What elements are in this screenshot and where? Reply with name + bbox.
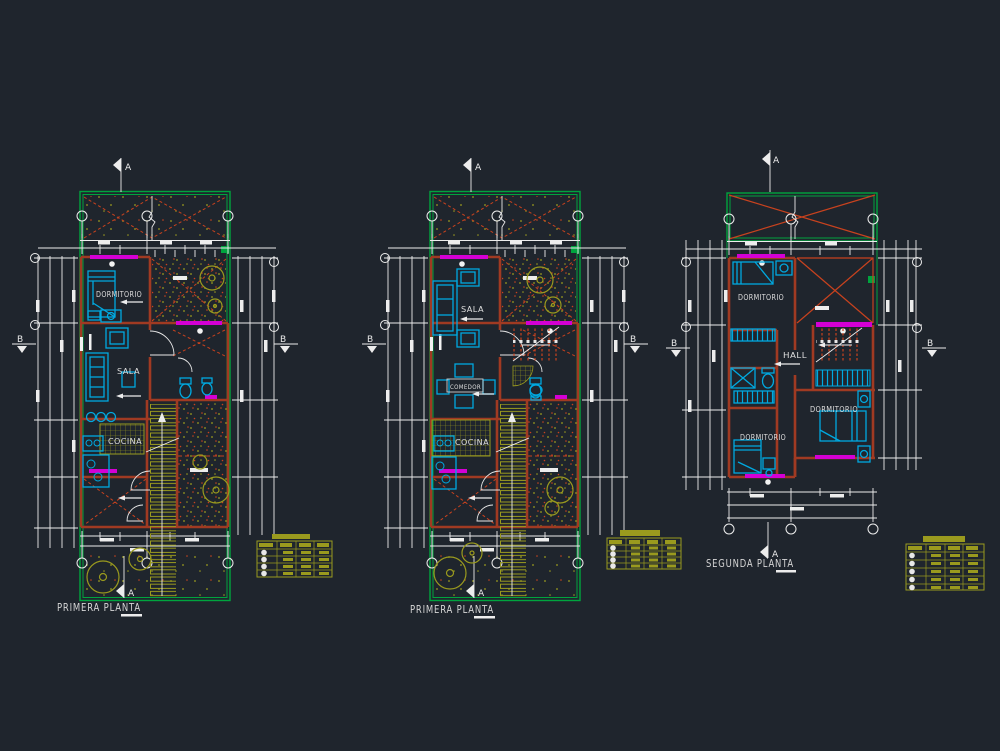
dimension-lines [682,224,922,522]
floor-plans-drawing: DORMITORIO SALA COCINA A A B B PRIMERA P… [0,0,1000,751]
title-underline [776,570,796,573]
cad-drawing-canvas[interactable]: DORMITORIO SALA COCINA A A B B PRIMERA P… [0,0,1000,751]
schedule-table-right [906,536,984,590]
bedroom3-furniture [820,391,870,462]
section-b-right: B [280,335,286,345]
bathroom-bidet [202,378,212,395]
section-a-top: A [125,163,132,173]
title-underline [474,616,495,619]
plan-title: PRIMERA PLANTA [57,602,141,614]
section-a-bottom: A [478,589,485,599]
dining-label: COMEDOR [450,383,481,391]
title-underline [121,614,142,617]
plan-title: PRIMERA PLANTA [410,604,494,616]
kitchen-furniture [432,420,490,489]
room-labels: DORMITORIO SALA COCINA [96,290,142,446]
section-a-top: A [773,156,780,166]
plan-title: SEGUNDA PLANTA [706,558,794,570]
kitchen-label: COCINA [108,437,142,446]
section-b-left: B [17,335,23,345]
interior-stair-flight [513,327,559,386]
plan-primera-planta-1: DORMITORIO SALA COCINA A A B B PRIMERA P… [12,158,298,617]
section-a-top: A [475,163,482,173]
break-line [792,196,798,239]
hall-label: HALL [783,351,807,360]
stairs [816,328,870,386]
living-label: SALA [461,305,484,314]
living-furniture [86,328,135,401]
bedroom1-label: DORMITORIO [738,293,784,302]
bathroom-furniture [731,368,774,403]
plan-primera-planta-2: SALA COMEDOR COCINA A A B B PRIMERA PLAN… [362,158,648,619]
kitchen-label: COCINA [455,438,489,447]
plan-segunda-planta: DORMITORIO DORMITORIO DORMITORIO HALL A … [666,150,946,573]
room-arrows [116,300,143,399]
section-b-left: B [367,335,373,345]
schedule-table-middle [607,530,681,569]
bedroom2-furniture [734,440,775,476]
section-a-bottom: A [128,589,135,599]
windows [737,254,872,478]
bedroom3-label: DORMITORIO [810,405,858,414]
bedroom-label: DORMITORIO [96,290,142,299]
living-label: SALA [117,367,140,376]
section-b-right: B [927,339,933,349]
section-b-right: B [630,335,636,345]
bedroom2-label: DORMITORIO [740,433,786,442]
section-b-left: B [671,339,677,349]
schedule-table-left [257,534,332,577]
